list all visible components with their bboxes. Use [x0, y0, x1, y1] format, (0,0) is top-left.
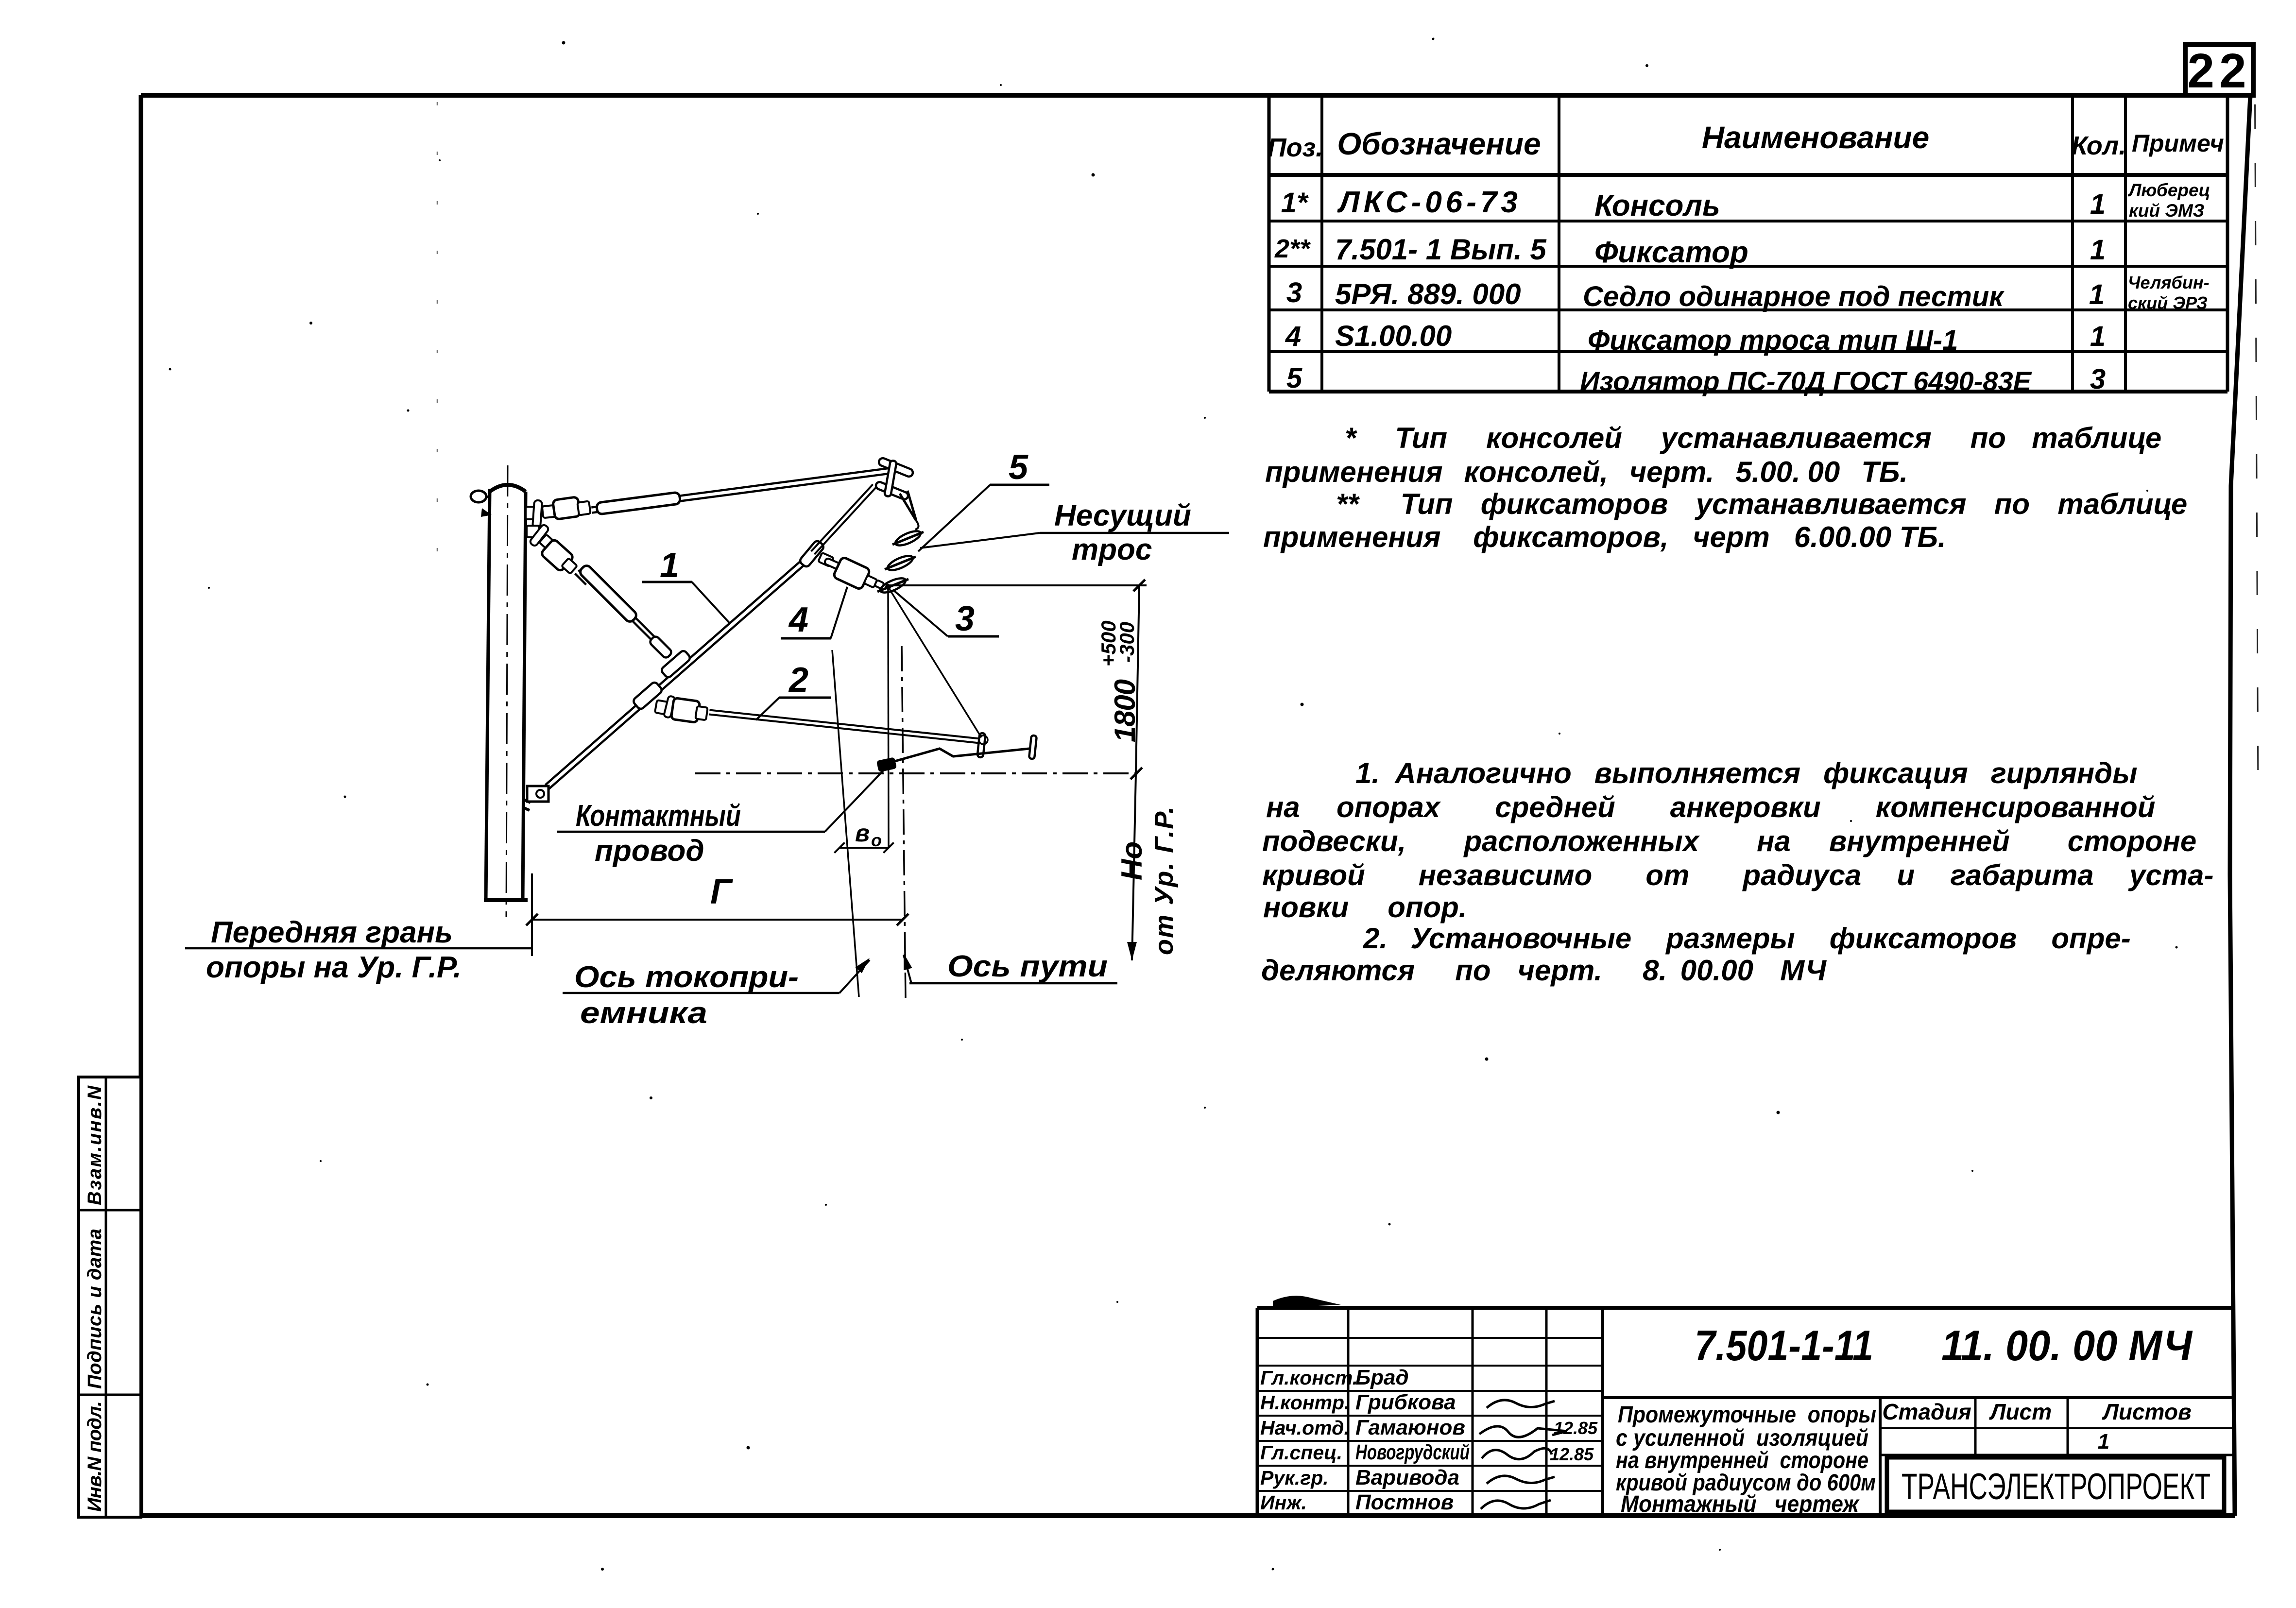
- svg-text:кий ЭМЗ: кий ЭМЗ: [2129, 201, 2204, 221]
- svg-text:12.85: 12.85: [1550, 1444, 1594, 1464]
- svg-text:Грибкова: Грибкова: [1355, 1390, 1456, 1414]
- svg-text:подвески, расположенных на: подвески, расположенных на внутренней ст…: [1262, 825, 2196, 857]
- svg-text:Брад: Брад: [1355, 1366, 1409, 1389]
- svg-text:1*: 1*: [1281, 187, 1309, 219]
- svg-text:Ось пути: Ось пути: [947, 950, 1108, 983]
- svg-text:3: 3: [1286, 277, 1302, 308]
- svg-text:Но: Но: [1115, 841, 1148, 880]
- svg-text:4: 4: [788, 600, 808, 639]
- svg-text:* Тип консолей устанавли: * Тип консолей устанавливается по таблиц…: [1345, 422, 2161, 454]
- svg-text:1: 1: [2090, 234, 2106, 266]
- svg-text:Челябин-: Челябин-: [2128, 273, 2210, 292]
- svg-text:Новогрудский: Новогрудский: [1355, 1440, 1470, 1464]
- svg-text:на опорах средней анкеров: на опорах средней анкеровки компенсирова…: [1266, 791, 2155, 823]
- svg-text:Гл.спец.: Гл.спец.: [1260, 1441, 1342, 1464]
- svg-text:Наименование: Наименование: [1702, 120, 1929, 155]
- svg-text:2. Установочные размеры ф: 2. Установочные размеры фиксаторов опре-: [1363, 922, 2131, 955]
- svg-text:новки опор.: новки опор.: [1263, 891, 1467, 924]
- svg-text:2**: 2**: [1274, 234, 1311, 263]
- svg-text:Контактный: Контактный: [576, 799, 741, 833]
- svg-text:Инж.: Инж.: [1260, 1491, 1307, 1514]
- svg-text:1: 1: [2090, 321, 2106, 352]
- svg-text:S1.00.00: S1.00.00: [1335, 320, 1452, 352]
- svg-text:провод: провод: [595, 834, 704, 868]
- svg-text:5: 5: [1286, 362, 1302, 394]
- svg-text:Гл.конст.: Гл.конст.: [1260, 1367, 1358, 1389]
- svg-text:Несущий: Несущий: [1054, 499, 1191, 532]
- svg-text:Поз.: Поз.: [1268, 133, 1323, 162]
- svg-text:применения фиксаторов, че: применения фиксаторов, черт 6.00.00 ТБ.: [1263, 521, 1946, 553]
- svg-text:Взам.инв.N: Взам.инв.N: [84, 1085, 105, 1205]
- svg-text:Г: Г: [710, 872, 733, 911]
- svg-text:от Ур. Г.Р.: от Ур. Г.Р.: [1149, 806, 1179, 955]
- svg-text:емника: емника: [580, 996, 707, 1030]
- svg-text:Инв.N подл.: Инв.N подл.: [84, 1401, 105, 1512]
- svg-text:Промежуточные опоры: Промежуточные опоры: [1618, 1402, 1876, 1428]
- svg-text:1: 1: [2090, 188, 2106, 220]
- svg-text:ТРАНСЭЛЕКТРОПРОЕКТ: ТРАНСЭЛЕКТРОПРОЕКТ: [1902, 1466, 2210, 1507]
- svg-text:Листов: Листов: [2102, 1399, 2191, 1424]
- svg-text:3: 3: [2090, 363, 2106, 395]
- svg-text:ЛКС-06-73: ЛКС-06-73: [1337, 186, 1522, 219]
- svg-text:2: 2: [788, 661, 808, 700]
- svg-text:-300: -300: [1115, 622, 1138, 663]
- svg-text:11. 00. 00 МЧ: 11. 00. 00 МЧ: [1941, 1321, 2193, 1369]
- svg-text:трос: трос: [1072, 533, 1152, 566]
- svg-text:деляются по черт. 8. 00.0: деляются по черт. 8. 00.00 МЧ: [1261, 954, 1827, 987]
- svg-text:Передняя грань: Передняя грань: [211, 916, 453, 949]
- svg-text:7.501-1-11: 7.501-1-11: [1695, 1321, 1873, 1369]
- svg-text:5: 5: [1009, 448, 1028, 487]
- svg-text:1: 1: [2098, 1430, 2109, 1454]
- svg-text:3: 3: [955, 599, 975, 638]
- svg-text:12.85: 12.85: [1554, 1418, 1598, 1438]
- svg-text:Стадия: Стадия: [1882, 1399, 1971, 1424]
- svg-text:1. Аналогично выполняется: 1. Аналогично выполняется фиксация гирля…: [1355, 757, 2138, 789]
- svg-text:Монтажный чертеж: Монтажный чертеж: [1621, 1491, 1860, 1517]
- svg-text:Рук.гр.: Рук.гр.: [1260, 1467, 1329, 1489]
- svg-text:кривой независимо от рад: кривой независимо от радиуса и габарита …: [1262, 859, 2213, 891]
- svg-text:4: 4: [1285, 321, 1301, 352]
- svg-text:1: 1: [660, 546, 679, 585]
- svg-text:Изолятор ПС-70Д ГОСТ 6490-83Е: Изолятор ПС-70Д ГОСТ 6490-83Е: [1580, 366, 2032, 396]
- svg-text:1800: 1800: [1109, 679, 1141, 742]
- svg-text:Примеч: Примеч: [2132, 130, 2224, 157]
- svg-text:ский ЭРЗ: ский ЭРЗ: [2128, 293, 2208, 313]
- svg-text:о: о: [871, 830, 882, 850]
- svg-text:опоры на Ур. Г.Р.: опоры на Ур. Г.Р.: [206, 951, 462, 984]
- svg-text:** Тип фиксаторов устанавл: ** Тип фиксаторов устанавливается по таб…: [1336, 488, 2187, 520]
- svg-text:Нач.отд.: Нач.отд.: [1260, 1417, 1350, 1439]
- svg-text:Люберец: Люберец: [2127, 180, 2210, 200]
- svg-text:7.501- 1 Вып. 5: 7.501- 1 Вып. 5: [1335, 233, 1547, 266]
- svg-text:Седло одинарное под пестик: Седло одинарное под пестик: [1583, 281, 2005, 312]
- svg-text:Варивода: Варивода: [1355, 1466, 1459, 1489]
- svg-text:Подпись и дата: Подпись и дата: [84, 1229, 105, 1389]
- svg-text:22: 22: [2187, 44, 2251, 98]
- svg-text:1: 1: [2089, 279, 2105, 310]
- svg-text:в: в: [855, 820, 870, 847]
- svg-text:Фиксатор троса тип Ш-1: Фиксатор троса тип Ш-1: [1588, 325, 1958, 356]
- svg-text:Ось токопри-: Ось токопри-: [574, 960, 799, 994]
- svg-text:Лист: Лист: [1989, 1399, 2052, 1424]
- svg-text:Постнов: Постнов: [1355, 1490, 1454, 1514]
- svg-text:Кол.: Кол.: [2072, 131, 2126, 160]
- svg-text:5РЯ. 889. 000: 5РЯ. 889. 000: [1335, 278, 1521, 310]
- svg-text:Обозначение: Обозначение: [1337, 126, 1541, 161]
- svg-text:Консоль: Консоль: [1594, 189, 1720, 222]
- svg-text:применения консолей, черт.: применения консолей, черт. 5.00. 00 ТБ.: [1265, 456, 1908, 488]
- svg-text:Гамаюнов: Гамаюнов: [1355, 1416, 1465, 1439]
- svg-text:Фиксатор: Фиксатор: [1594, 236, 1748, 269]
- svg-text:Н.контр.: Н.контр.: [1260, 1391, 1350, 1414]
